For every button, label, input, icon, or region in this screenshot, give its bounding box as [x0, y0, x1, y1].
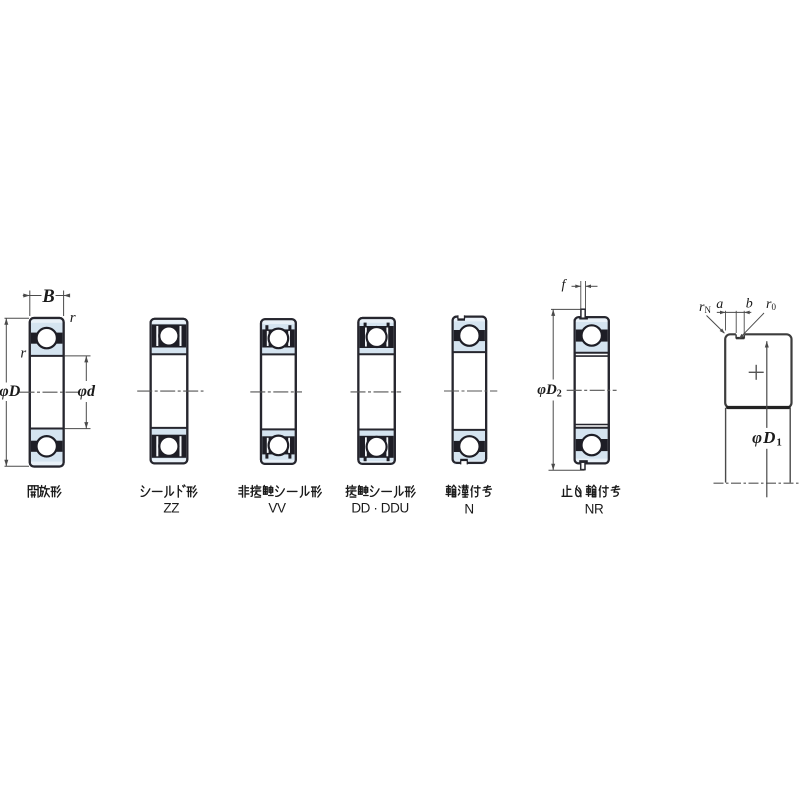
- svg-text:N: N: [464, 502, 473, 517]
- svg-text:B: B: [41, 287, 54, 307]
- svg-text:DD · DDU: DD · DDU: [351, 501, 409, 516]
- svg-text:ZZ: ZZ: [163, 501, 179, 516]
- svg-text:NR: NR: [585, 502, 604, 517]
- svg-text:a: a: [716, 297, 723, 312]
- svg-text:VV: VV: [268, 501, 286, 516]
- svg-text:b: b: [746, 297, 753, 312]
- svg-text:r: r: [20, 346, 26, 362]
- svg-text:φd: φd: [78, 383, 96, 400]
- svg-text:φD: φD: [0, 383, 21, 400]
- svg-text:r: r: [70, 310, 76, 326]
